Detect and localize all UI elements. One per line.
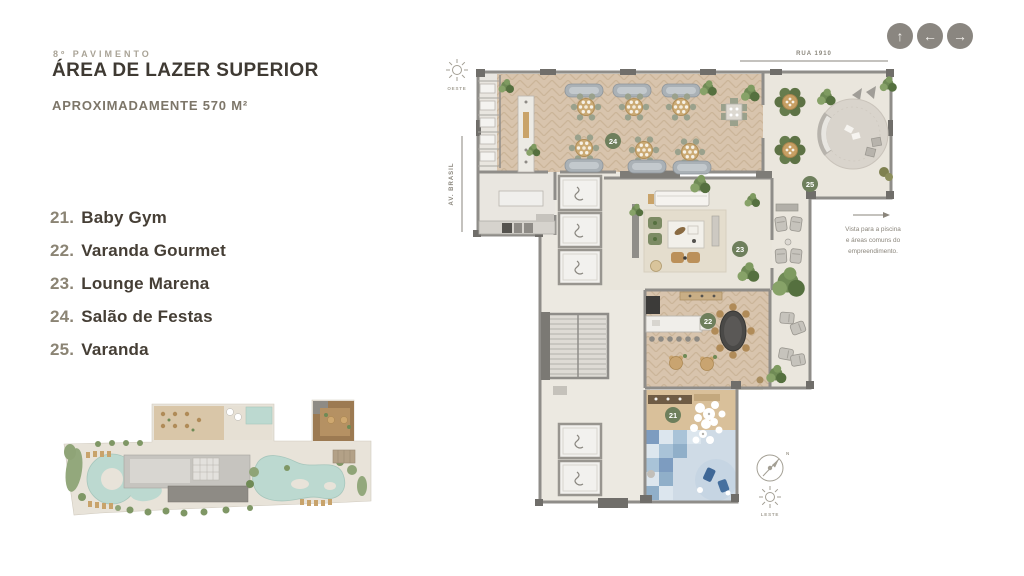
legend-item-25: 25.Varanda	[50, 340, 226, 360]
svg-text:LESTE: LESTE	[761, 512, 780, 517]
svg-text:Vista para a piscina: Vista para a piscina	[845, 226, 901, 233]
floor-plan: 24 25 23 22 21 RUA 1910 AV. BRASIL OESTE…	[440, 40, 915, 545]
legend-name: Varanda Gourmet	[81, 241, 226, 260]
svg-text:23: 23	[736, 245, 744, 254]
legend-number: 23.	[50, 274, 74, 293]
sun-west-icon: OESTE	[446, 59, 468, 91]
svg-text:24: 24	[609, 137, 618, 146]
legend-list: 21.Baby Gym 22.Varanda Gourmet 23.Lounge…	[50, 208, 226, 373]
area-label: APROXIMADAMENTE 570 M²	[52, 98, 248, 113]
badge-22: 22	[700, 313, 716, 329]
svg-text:21: 21	[669, 411, 677, 420]
street-label-av-brasil: AV. BRASIL	[449, 136, 462, 232]
svg-text:e áreas comuns do: e áreas comuns do	[846, 237, 901, 244]
legend-number: 25.	[50, 340, 74, 359]
legend-name: Lounge Marena	[81, 274, 209, 293]
nav-left-button[interactable]: ←	[917, 23, 943, 49]
legend-item-24: 24.Salão de Festas	[50, 307, 226, 327]
legend-item-23: 23.Lounge Marena	[50, 274, 226, 294]
sun-east-icon: LESTE	[759, 486, 781, 517]
badge-21: 21	[665, 407, 681, 423]
page: { "page": { "floor_label": "8º PAVIMENTO…	[0, 0, 1024, 576]
legend-name: Salão de Festas	[81, 307, 213, 326]
svg-text:N: N	[786, 451, 790, 456]
legend-item-21: 21.Baby Gym	[50, 208, 226, 228]
overview-site-plan	[60, 392, 378, 532]
svg-text:AV. BRASIL: AV. BRASIL	[449, 162, 455, 205]
legend-item-22: 22.Varanda Gourmet	[50, 241, 226, 261]
legend-name: Varanda	[81, 340, 149, 359]
legend-number: 22.	[50, 241, 74, 260]
svg-text:OESTE: OESTE	[447, 86, 466, 91]
svg-text:22: 22	[704, 317, 712, 326]
view-note: Vista para a piscina e áreas comuns do e…	[845, 212, 901, 255]
page-title: ÁREA DE LAZER SUPERIOR	[52, 60, 319, 82]
nav-right-button[interactable]: →	[947, 23, 973, 49]
badge-25: 25	[802, 176, 818, 192]
arrow-right-icon: →	[953, 28, 967, 44]
legend-number: 21.	[50, 208, 74, 227]
badge-23: 23	[732, 241, 748, 257]
svg-text:25: 25	[806, 180, 814, 189]
legend-name: Baby Gym	[81, 208, 167, 227]
floor-label: 8º PAVIMENTO	[53, 49, 152, 59]
street-label-rua-1910: RUA 1910	[740, 51, 888, 61]
svg-text:RUA 1910: RUA 1910	[796, 51, 832, 57]
compass-icon: N	[757, 451, 790, 481]
arrow-left-icon: ←	[923, 28, 937, 44]
badge-24: 24	[605, 133, 621, 149]
legend-number: 24.	[50, 307, 74, 326]
svg-text:empreendimento.: empreendimento.	[848, 248, 898, 255]
